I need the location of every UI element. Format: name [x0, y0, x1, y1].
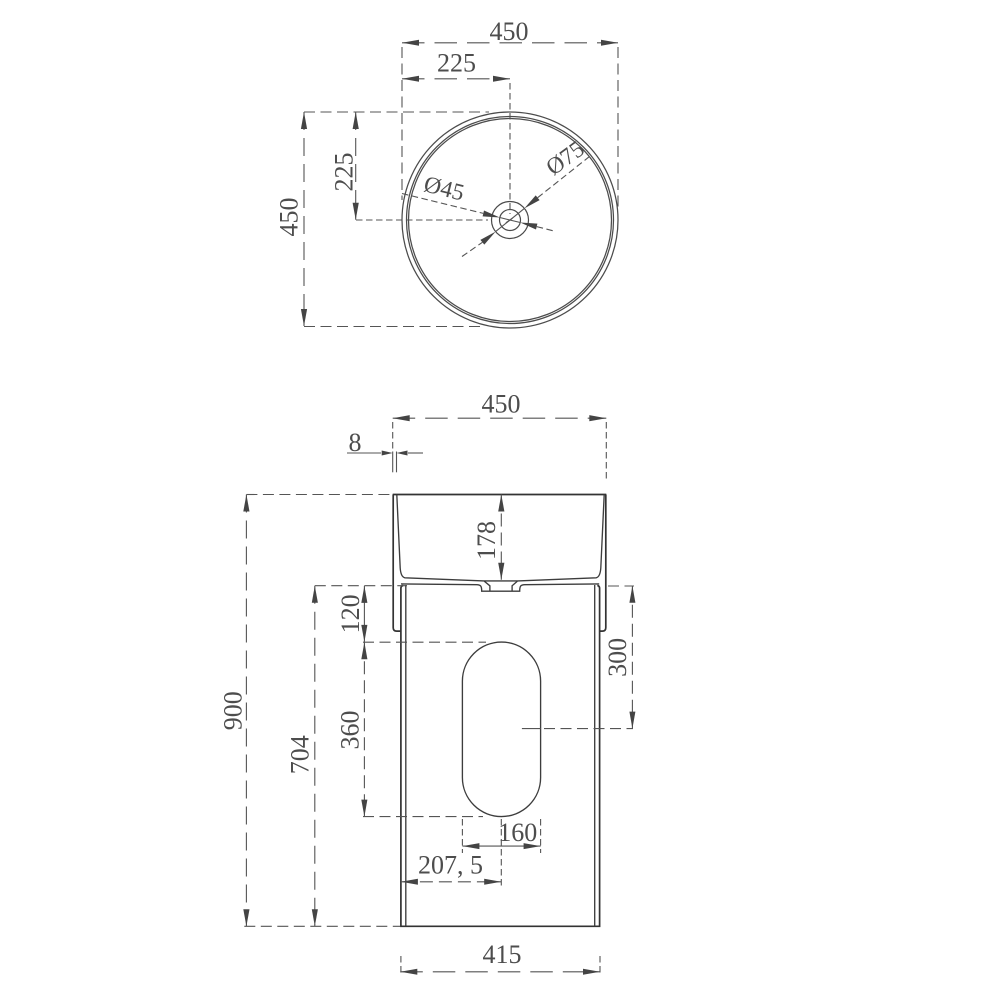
svg-text:120: 120 [336, 594, 365, 633]
svg-text:225: 225 [437, 49, 476, 78]
svg-text:450: 450 [490, 17, 529, 46]
svg-text:8: 8 [349, 428, 362, 457]
svg-text:160: 160 [498, 818, 537, 847]
svg-text:415: 415 [483, 940, 522, 969]
svg-text:225: 225 [330, 153, 359, 192]
svg-text:178: 178 [472, 521, 501, 560]
svg-text:450: 450 [275, 198, 304, 237]
svg-text:300: 300 [603, 638, 632, 677]
svg-text:704: 704 [285, 735, 314, 774]
svg-text:900: 900 [219, 691, 248, 730]
svg-text:450: 450 [482, 390, 521, 419]
svg-text:360: 360 [336, 711, 365, 750]
svg-text:207, 5: 207, 5 [418, 850, 483, 879]
